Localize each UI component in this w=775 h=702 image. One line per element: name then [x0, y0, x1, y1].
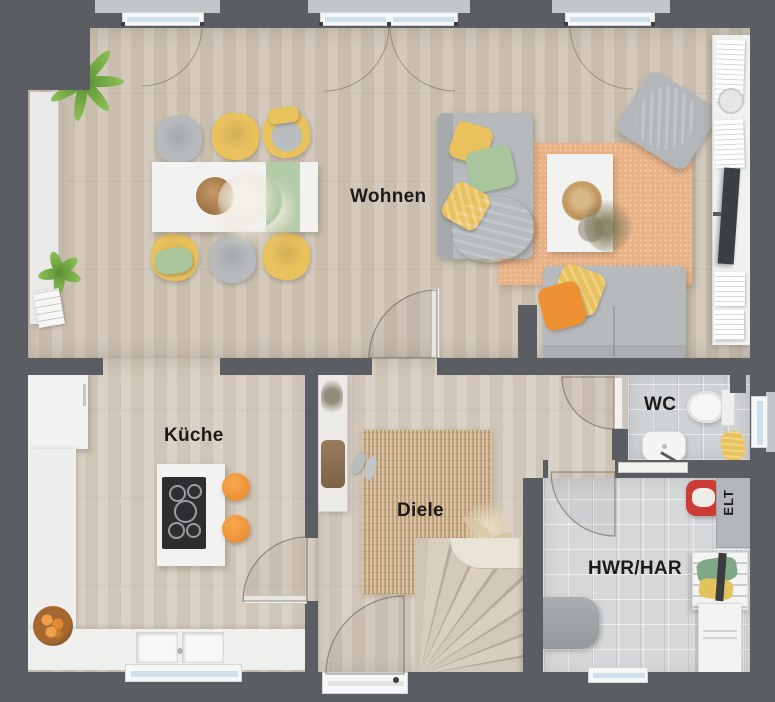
shelf-books	[715, 272, 746, 307]
entry-door-handle	[393, 677, 399, 683]
door-leaf-utility	[618, 462, 688, 473]
room-label-living: Wohnen	[350, 186, 426, 208]
window-utility	[588, 667, 648, 683]
wall-kitchen-top-a	[28, 358, 103, 375]
wall-hall-top	[318, 358, 372, 375]
dining-chair	[211, 112, 260, 161]
toilet-tank	[721, 389, 735, 426]
chair-blanket-green	[153, 246, 194, 276]
heating-unit	[542, 597, 599, 649]
window-hinge	[387, 22, 391, 26]
washing-machine	[698, 603, 742, 673]
wall-stairs-hwr	[523, 478, 543, 675]
door-leaf-kitchen	[243, 595, 307, 604]
room-label-hall: Diele	[397, 500, 444, 522]
kitchen-sink-basin	[182, 632, 224, 663]
potted-plant-small	[38, 250, 78, 290]
dining-chair	[208, 235, 257, 284]
bar-stool	[222, 515, 250, 543]
drying-rack	[692, 552, 748, 610]
window-hinge	[651, 22, 655, 26]
entry-door	[322, 672, 408, 694]
coffee-table-plant	[584, 198, 632, 252]
window-hinge	[319, 22, 323, 26]
window-hinge	[121, 22, 125, 26]
shelf-books	[714, 310, 745, 341]
wall-wc-hwr-divider-stub	[543, 460, 548, 478]
dining-chair	[154, 115, 203, 164]
shelf-books	[714, 120, 745, 169]
window-hinge	[454, 22, 458, 26]
tv-stand	[713, 212, 721, 216]
shelf-bowl	[718, 88, 744, 114]
door-leaf-living-hall	[431, 288, 440, 358]
wall-kitchen-top-b	[220, 358, 318, 375]
wall-right	[750, 0, 775, 702]
wardrobe-bag	[321, 440, 345, 488]
wall-stub-sofa	[518, 305, 537, 360]
staircase	[415, 538, 525, 675]
window-living-3	[565, 12, 655, 26]
fridge	[28, 372, 88, 449]
window-kitchen	[125, 664, 242, 682]
room-label-utility: HWR/HAR	[588, 558, 682, 580]
floorplan: Wohnen Küche Diele WC HWR/HAR ELT	[0, 0, 775, 702]
door-leaf-wc	[613, 377, 623, 429]
room-label-wc: WC	[644, 394, 676, 416]
cooktop	[162, 477, 206, 549]
window-living-1	[122, 12, 204, 26]
window-hinge	[564, 22, 568, 26]
wardrobe-plant	[321, 380, 343, 416]
wall-wc-pier	[730, 373, 746, 393]
wall-left	[0, 0, 28, 702]
kitchen-sink-basin	[136, 632, 178, 663]
table-flowers	[218, 172, 282, 230]
kitchen-counter-left	[28, 449, 76, 630]
window-hinge	[200, 22, 204, 26]
kitchen-faucet	[177, 648, 183, 654]
wall-wc-left	[612, 429, 628, 460]
wall-kitchen-hall-lower	[305, 601, 318, 675]
wall-living-south	[437, 358, 750, 375]
fruit-bowl	[33, 606, 73, 646]
room-label-kitchen: Küche	[164, 425, 224, 447]
room-label-electrical: ELT	[721, 489, 736, 516]
window-wc	[751, 396, 768, 448]
wall-kitchen-hall-upper	[305, 358, 318, 538]
bar-stool	[222, 473, 250, 501]
toilet-bowl	[687, 391, 724, 423]
